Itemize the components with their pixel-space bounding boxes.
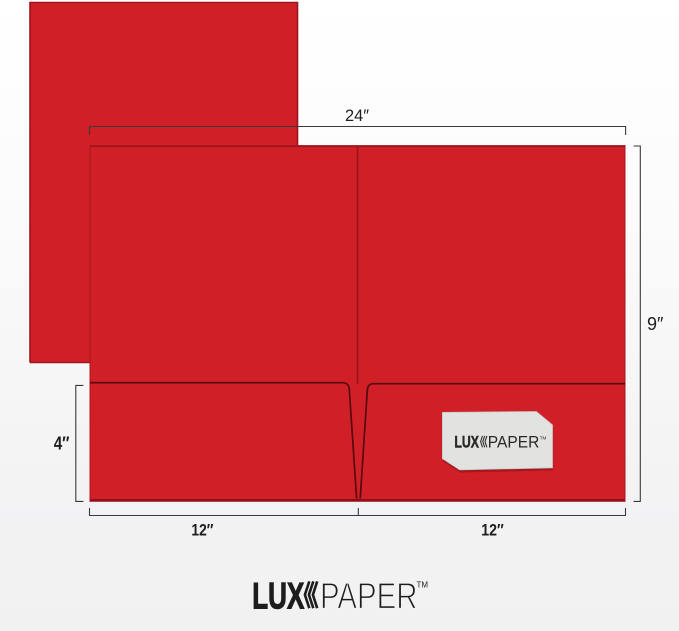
svg-text:LUX: LUX bbox=[454, 433, 479, 452]
svg-text:PAPER: PAPER bbox=[488, 433, 540, 452]
svg-text:9″: 9″ bbox=[647, 314, 664, 334]
svg-text:12″: 12″ bbox=[191, 522, 213, 540]
svg-text:12″: 12″ bbox=[481, 521, 504, 539]
svg-text:24″: 24″ bbox=[345, 106, 369, 125]
svg-text:TM: TM bbox=[417, 581, 429, 590]
svg-text:4″: 4″ bbox=[54, 434, 70, 454]
svg-text:TM: TM bbox=[540, 436, 547, 441]
svg-text:LUX: LUX bbox=[252, 574, 304, 616]
svg-text:PAPER: PAPER bbox=[320, 574, 418, 616]
